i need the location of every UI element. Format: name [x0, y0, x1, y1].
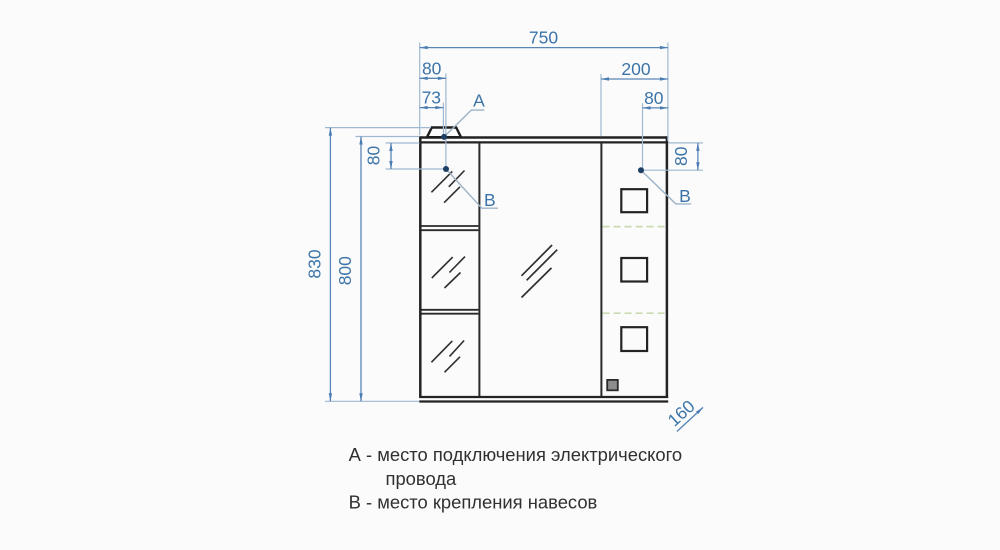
svg-text:80: 80 [671, 146, 691, 166]
svg-text:А - место подключения электрич: А - место подключения электрического [349, 444, 683, 465]
svg-text:800: 800 [335, 256, 355, 285]
svg-text:750: 750 [529, 28, 558, 48]
svg-text:80: 80 [364, 146, 384, 166]
svg-text:830: 830 [305, 249, 325, 278]
svg-text:В - место крепления навесов: В - место крепления навесов [349, 491, 598, 512]
svg-text:А: А [473, 91, 485, 111]
svg-text:80: 80 [422, 58, 442, 78]
svg-text:200: 200 [621, 59, 650, 79]
svg-text:80: 80 [644, 88, 664, 108]
svg-text:В: В [484, 190, 496, 210]
svg-text:73: 73 [422, 88, 441, 108]
svg-text:В: В [679, 186, 691, 206]
svg-text:провода: провода [386, 468, 458, 489]
